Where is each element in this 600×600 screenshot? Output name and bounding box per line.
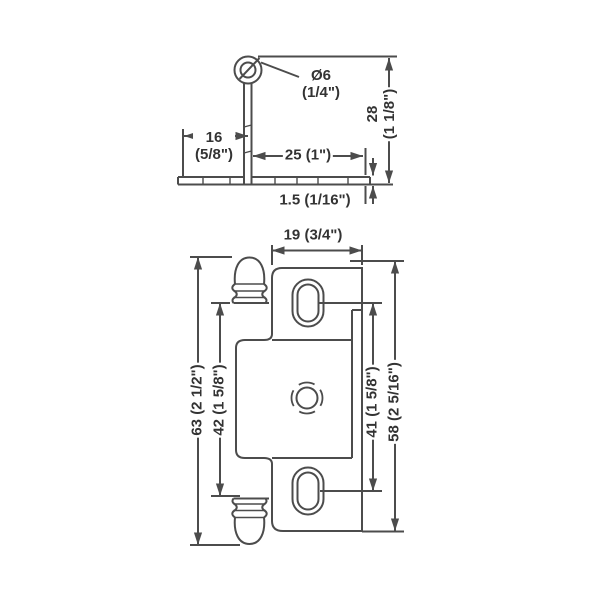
left-flange-mm: 16 — [195, 129, 233, 146]
vertical-leaf — [244, 84, 252, 185]
right-flange-dim-label: 25 (1") — [283, 147, 333, 164]
center-hole — [292, 383, 323, 414]
screw-slot-lower — [293, 468, 324, 515]
knuckle-finial-top — [232, 258, 269, 304]
left-flange-in: (5/8") — [195, 146, 233, 163]
plate-height-dim-label: 58 (2 5/16") — [386, 360, 403, 444]
left-flange-dim-label: 16 (5/8") — [193, 129, 235, 163]
technical-drawing-sheet: Ø6 (1/4") 16 (5/8") 25 (1") 28 (1 1/8") … — [0, 0, 600, 600]
side-height-in: (1 1/8") — [381, 89, 398, 139]
knuckle-finial-bottom — [232, 499, 269, 545]
side-height-mm: 28 — [364, 89, 381, 139]
plate-thickness-dim-label: 1.5 (1/16") — [277, 192, 352, 209]
side-height-dim-label: 28 (1 1/8") — [364, 87, 398, 141]
diameter-leader-line — [261, 63, 299, 78]
overall-height-dim-label: 63 (2 1/2") — [189, 362, 206, 437]
plate-width-dim-label: 19 (3/4") — [282, 227, 345, 244]
knuckle-gap-dim-label: 42 (1 5/8") — [211, 362, 228, 437]
horizontal-leaf — [178, 177, 393, 185]
pin-diameter-label: Ø6 (1/4") — [300, 67, 342, 101]
pin-diameter-mm: Ø6 — [302, 67, 340, 84]
pin-diameter-in: (1/4") — [302, 84, 340, 101]
hinge-barrel — [235, 57, 262, 84]
slot-spacing-dim-label: 41 (1 5/8") — [364, 364, 381, 439]
